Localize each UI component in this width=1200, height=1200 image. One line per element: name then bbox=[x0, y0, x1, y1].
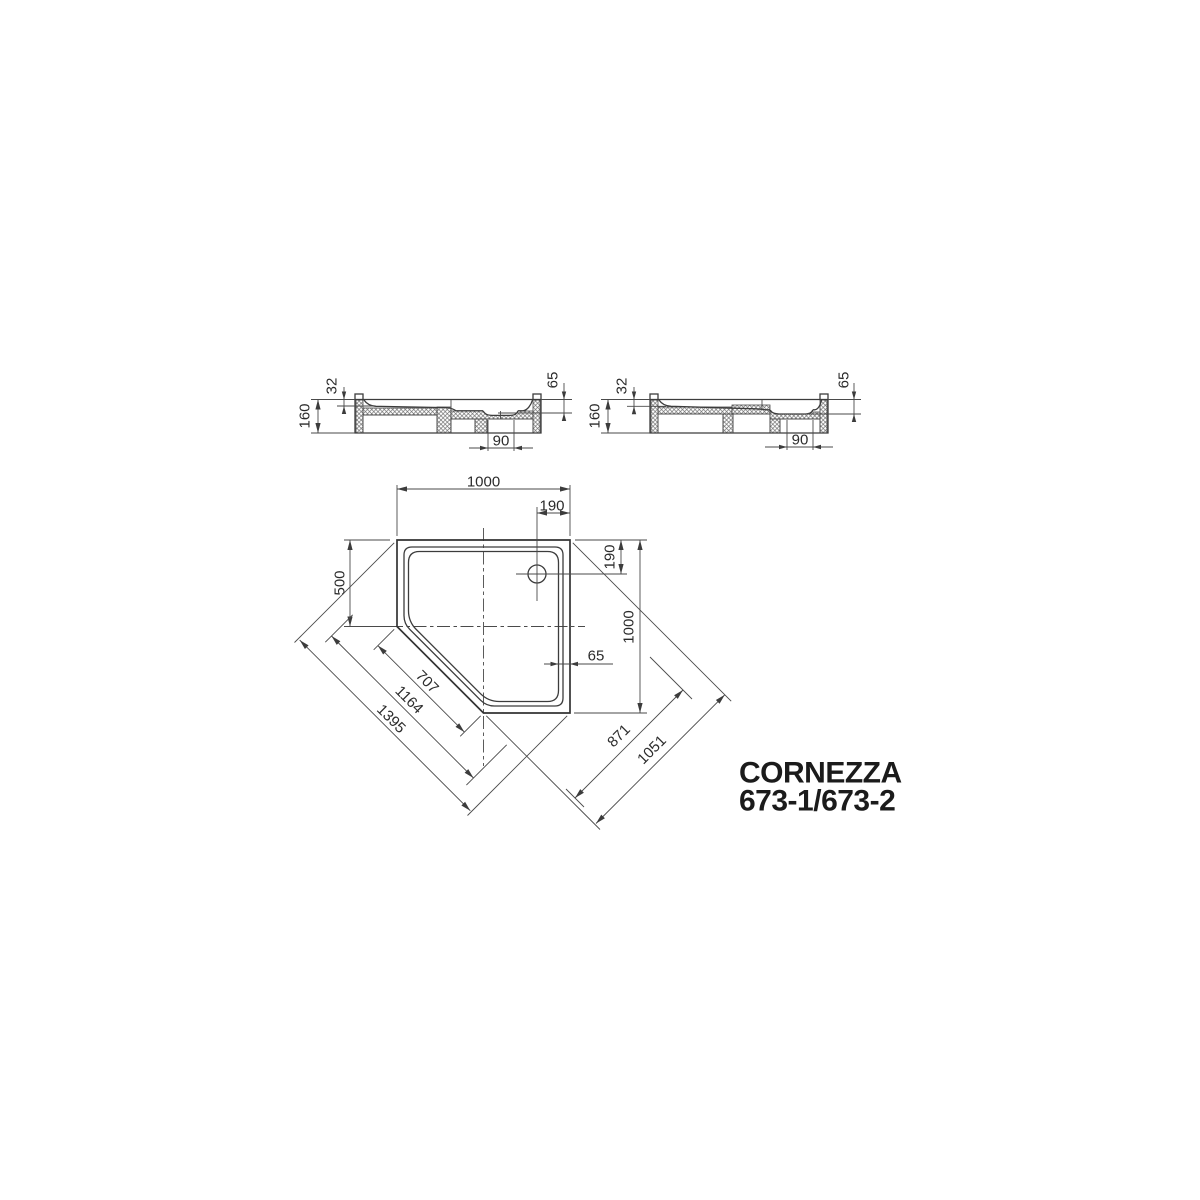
ls-dim-90-arrow-right bbox=[514, 446, 522, 450]
dim-label-rim-width: 65 bbox=[588, 648, 605, 665]
dim-label-rs-total-height: 160 bbox=[587, 403, 604, 428]
rs-dim-65-arrow-top bbox=[852, 392, 856, 400]
ls-dim-65-arrow-top bbox=[562, 392, 566, 400]
rs-foot-mid bbox=[733, 414, 770, 433]
dim-label-ls-drain-width: 90 bbox=[493, 433, 510, 450]
dim-label-drain-offset-top: 190 bbox=[539, 498, 564, 515]
ls-support-column-2 bbox=[475, 419, 487, 433]
dim-label-cut-edge: 707 bbox=[412, 667, 442, 697]
dim-label-top-width: 1000 bbox=[467, 474, 500, 491]
ls-left-wall-support bbox=[356, 400, 363, 433]
dim-label-rs-rim-depth: 32 bbox=[614, 378, 631, 395]
product-title: CORNEZZA 673-1/673-2 bbox=[739, 757, 902, 818]
dim-label-right-side: 1000 bbox=[621, 610, 638, 643]
ext-cut-corner-left bbox=[374, 629, 395, 650]
ls-foot-left bbox=[363, 415, 437, 433]
dim-label-rs-drain-depth: 65 bbox=[836, 372, 853, 389]
dim-label-cut-to-corner: 1051 bbox=[634, 732, 670, 768]
ls-right-rim-tab bbox=[533, 394, 541, 400]
rs-dim-90-arrow-right bbox=[813, 445, 821, 449]
rs-support-column-1 bbox=[723, 414, 733, 433]
dim-label-rs-drain-width: 90 bbox=[792, 432, 809, 449]
ext-1395-upper bbox=[295, 543, 395, 643]
dim-label-left-side: 500 bbox=[332, 570, 349, 595]
drawing-page: 160 32 65 90 bbox=[0, 0, 1200, 1200]
ext-cut-edge-extension bbox=[486, 716, 600, 830]
rs-dim-65-arrow-bottom bbox=[852, 414, 856, 422]
dim-65-plan-arrow-right bbox=[570, 662, 578, 666]
dim-65-plan-arrow-left bbox=[551, 662, 559, 666]
ls-dim-90-arrow-left bbox=[480, 446, 488, 450]
dim-label-ls-total-height: 160 bbox=[297, 403, 314, 428]
dim-label-ls-drain-depth: 65 bbox=[545, 372, 562, 389]
ls-foot-right bbox=[487, 419, 533, 433]
ls-dim-32-arrow-bottom bbox=[342, 406, 346, 414]
rs-right-rim-tab bbox=[820, 394, 828, 400]
dim-1051-line bbox=[596, 695, 725, 824]
technical-drawing: 160 32 65 90 bbox=[0, 0, 1200, 1200]
rs-support-column-2 bbox=[770, 419, 780, 433]
rs-dim-32-arrow-bottom bbox=[632, 406, 636, 414]
rs-left-rim-tab bbox=[650, 394, 658, 400]
ext-cut-corner-right bbox=[460, 716, 481, 737]
ls-support-column bbox=[437, 407, 451, 433]
dim-label-cut-to-drain: 871 bbox=[604, 721, 634, 751]
dim-label-drain-offset-right: 190 bbox=[602, 544, 619, 569]
ext-1051-upper bbox=[573, 543, 731, 701]
ls-right-wall-support bbox=[533, 400, 540, 433]
ls-left-rim-tab bbox=[355, 394, 363, 400]
ext-871-upper bbox=[650, 657, 692, 699]
rs-right-wall-support bbox=[820, 400, 827, 433]
dim-1395-line bbox=[300, 640, 471, 811]
section-view-right: 160 32 65 90 bbox=[587, 372, 862, 450]
rs-left-wall-support bbox=[651, 400, 658, 433]
rs-dim-32-arrow-top bbox=[632, 392, 636, 400]
ext-1164-upper bbox=[325, 615, 352, 642]
plan-view: 1000 190 500 190 1000 65 707 1164 1395 bbox=[295, 474, 732, 830]
rs-foot-left bbox=[658, 414, 723, 433]
section-view-left: 160 32 65 90 bbox=[297, 372, 573, 451]
ext-1395-lower bbox=[468, 716, 568, 816]
ls-dim-32-arrow-top bbox=[342, 392, 346, 400]
ls-basin-right-wall bbox=[518, 400, 533, 411]
ext-1164-lower bbox=[466, 745, 506, 785]
rs-dim-90-arrow-left bbox=[779, 445, 787, 449]
model-number: 673-1/673-2 bbox=[739, 785, 895, 818]
ls-support-band-left bbox=[363, 408, 437, 415]
dim-label-ls-rim-depth: 32 bbox=[324, 378, 341, 395]
ls-dim-65-arrow-bottom bbox=[562, 413, 566, 421]
ls-foot-mid bbox=[451, 419, 475, 433]
dim-1164-line bbox=[332, 636, 474, 778]
